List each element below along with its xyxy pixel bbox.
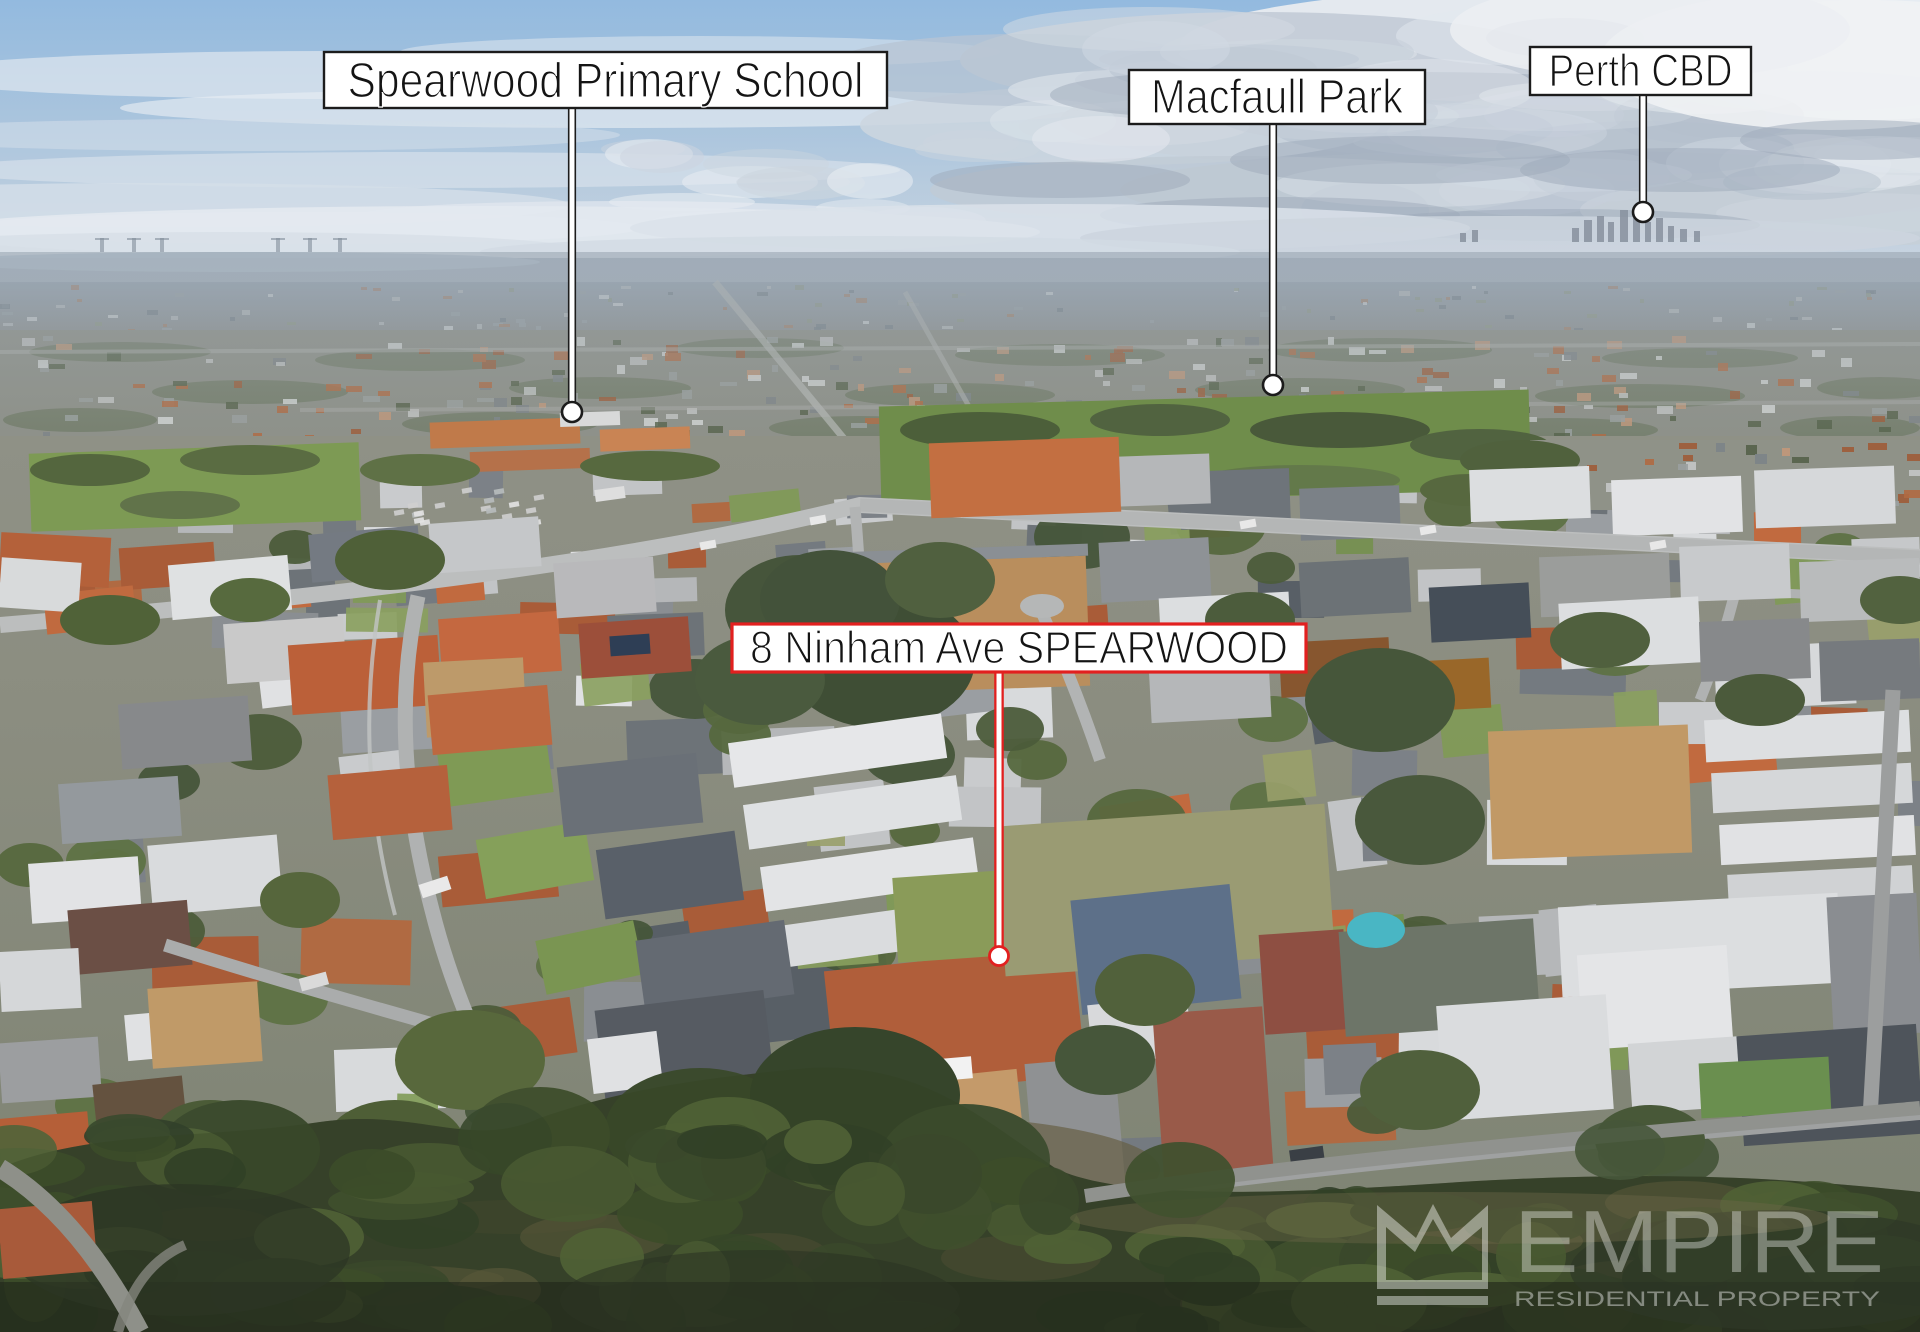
svg-text:Macfaull Park: Macfaull Park [1151,71,1404,124]
svg-text:RESIDENTIAL PROPERTY: RESIDENTIAL PROPERTY [1514,1288,1880,1311]
svg-text:8 Ninham Ave SPEARWOOD: 8 Ninham Ave SPEARWOOD [750,622,1288,673]
svg-text:Perth CBD: Perth CBD [1549,45,1733,96]
svg-text:Spearwood Primary School: Spearwood Primary School [348,54,864,108]
svg-text:EMPIRE: EMPIRE [1514,1192,1884,1291]
